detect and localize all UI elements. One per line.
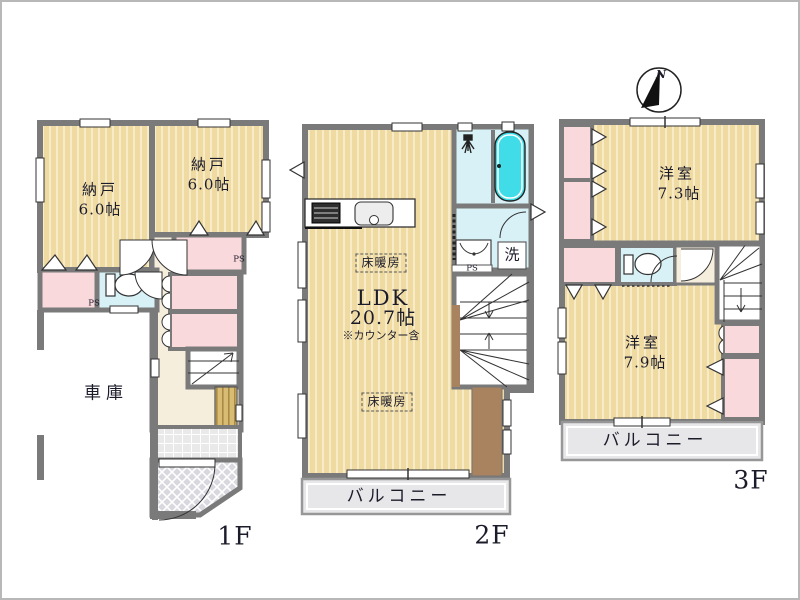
ps-label-1f-right: PS	[233, 255, 245, 266]
stair-wall	[452, 305, 460, 387]
toilet-icon-3f	[624, 254, 661, 275]
ldk-note: ※カウンター含	[343, 329, 420, 343]
floor3-balcony-label: バルコニー	[603, 430, 708, 451]
bath-fixture	[458, 123, 472, 131]
floor1-plan	[36, 119, 270, 520]
kitchen-counter	[305, 199, 415, 228]
floor-heating-label-bottom: 床暖房	[361, 393, 412, 412]
ps-label-1f-left: PS	[88, 299, 100, 310]
floor2-label: 2F	[474, 519, 509, 550]
floor3-room2-name: 洋室	[625, 334, 661, 353]
vent-triangle-icon	[531, 204, 545, 220]
bathtub-icon	[495, 132, 525, 201]
floor1-stairs	[188, 349, 239, 387]
floor1-closet-mid-1	[170, 274, 239, 311]
floor3-room2-size: 7.9帖	[624, 354, 667, 373]
washer-label: 洗	[504, 246, 519, 265]
floor1-room1-size: 6.0帖	[79, 201, 122, 220]
floor1-room2-name: 納戸	[191, 156, 227, 175]
floor2-plan	[290, 122, 545, 514]
compass-north-label: N	[656, 68, 666, 82]
floor3-room1-size: 7.3帖	[658, 185, 701, 204]
floor-heating-label-top: 床暖房	[355, 254, 406, 273]
floor3-closet-mid	[562, 246, 617, 284]
ps-label-2f: PS	[466, 264, 478, 275]
cabinet-handle	[236, 405, 242, 421]
floor1-room1-name: 納戸	[82, 181, 118, 200]
floor2-counter-strip	[472, 387, 502, 476]
vent-triangle-icon	[290, 162, 304, 178]
garage-label: 車庫	[84, 383, 128, 404]
ldk-size: 20.7帖	[350, 307, 416, 331]
floor1-closet-mid-2	[170, 312, 239, 349]
floor3-closet-left-2	[562, 180, 592, 241]
floor1-label: 1F	[217, 520, 252, 551]
floor2-stairs	[452, 274, 529, 387]
garage-wall-right	[152, 310, 158, 520]
window	[151, 359, 159, 377]
floor3-closet-left-1	[562, 125, 592, 180]
entry-porch	[152, 460, 240, 515]
sink-icon	[456, 240, 491, 266]
floor3-stairs	[717, 244, 762, 322]
floor3-room1-name: 洋室	[659, 165, 695, 184]
floor3-closet-right-1	[723, 324, 761, 355]
floor3-label: 3F	[733, 464, 768, 495]
floor-plan-canvas: N 納戸 6.0帖 納戸 6.0帖 車庫 PS PS 1F LDK 20.7帖 …	[0, 0, 800, 600]
window	[110, 306, 138, 313]
garage-wall-left-1	[37, 310, 44, 350]
floor3-closet-right-2	[723, 357, 761, 419]
garage-wall-left-2	[37, 435, 44, 480]
entry-tile-floor	[152, 427, 240, 460]
floor1-room2-size: 6.0帖	[188, 176, 231, 195]
floor2-balcony-label: バルコニー	[347, 486, 452, 507]
bath-fixture	[502, 122, 514, 131]
